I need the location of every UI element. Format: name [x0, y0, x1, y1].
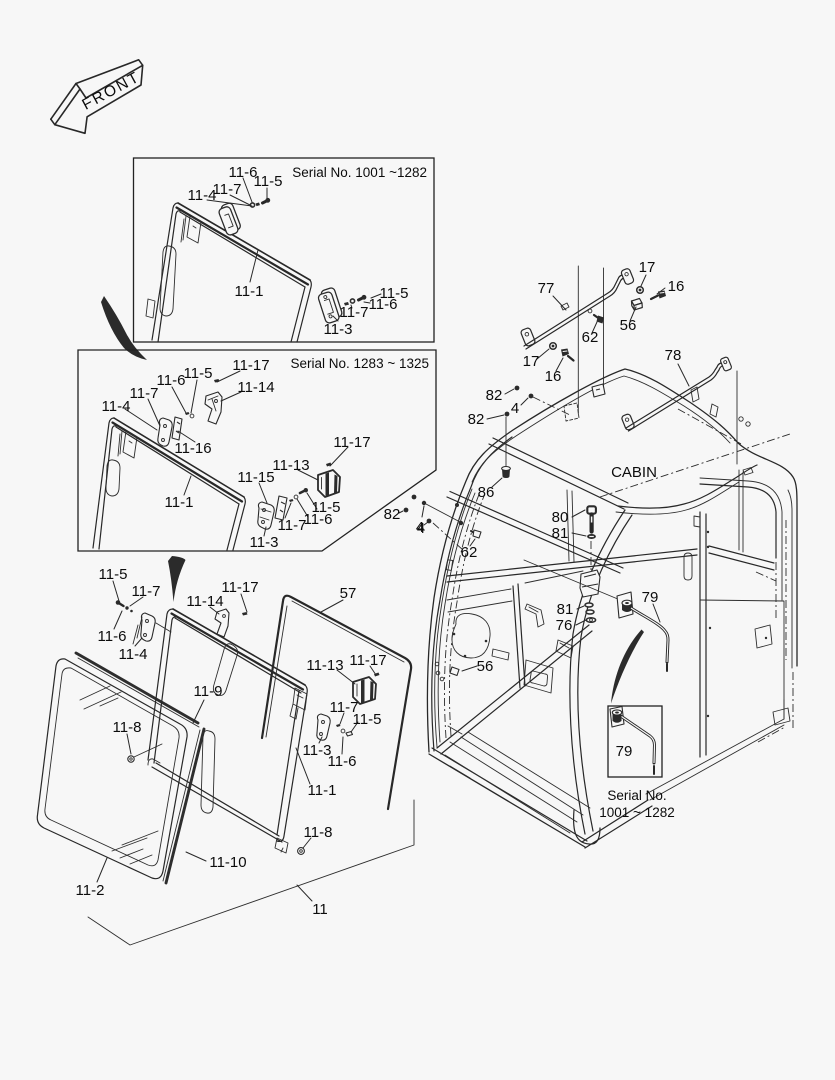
svg-text:11-8: 11-8 — [113, 719, 142, 736]
svg-text:57: 57 — [340, 585, 357, 602]
svg-text:11-17: 11-17 — [221, 579, 258, 596]
svg-text:11-1: 11-1 — [165, 494, 194, 511]
svg-text:11: 11 — [312, 901, 328, 918]
svg-text:16: 16 — [668, 278, 685, 295]
svg-text:4: 4 — [417, 520, 425, 537]
svg-text:56: 56 — [477, 658, 494, 675]
svg-text:11-7: 11-7 — [130, 385, 159, 402]
svg-text:78: 78 — [665, 347, 682, 364]
svg-text:11-6: 11-6 — [369, 296, 398, 313]
svg-text:11-7: 11-7 — [278, 517, 307, 534]
svg-text:4: 4 — [511, 400, 519, 417]
svg-text:62: 62 — [582, 329, 599, 346]
svg-text:62: 62 — [461, 544, 478, 561]
svg-text:77: 77 — [538, 280, 555, 297]
svg-text:82: 82 — [486, 387, 503, 404]
svg-text:11-3: 11-3 — [324, 321, 353, 338]
svg-text:11-5: 11-5 — [254, 173, 283, 190]
svg-text:80: 80 — [552, 509, 569, 526]
svg-text:11-3: 11-3 — [250, 534, 279, 551]
svg-text:Serial No. 1001 ~1282: Serial No. 1001 ~1282 — [292, 165, 427, 180]
svg-text:82: 82 — [468, 411, 485, 428]
svg-text:11-5: 11-5 — [353, 711, 382, 728]
svg-text:11-13: 11-13 — [306, 657, 343, 674]
svg-text:11-17: 11-17 — [333, 434, 370, 451]
svg-text:11-16: 11-16 — [174, 440, 211, 457]
svg-text:11-6: 11-6 — [328, 753, 357, 770]
svg-text:11-6: 11-6 — [304, 511, 333, 528]
svg-text:11-5: 11-5 — [184, 365, 213, 382]
svg-text:11-13: 11-13 — [272, 457, 309, 474]
svg-text:11-4: 11-4 — [119, 646, 148, 663]
svg-text:11-1: 11-1 — [235, 283, 264, 300]
svg-text:11-17: 11-17 — [232, 357, 269, 374]
svg-text:Serial No. 1283 ~ 1325: Serial No. 1283 ~ 1325 — [291, 356, 429, 371]
svg-text:82: 82 — [384, 506, 401, 523]
svg-text:11-14: 11-14 — [186, 593, 223, 610]
svg-text:76: 76 — [556, 617, 573, 634]
svg-text:11-10: 11-10 — [209, 854, 246, 871]
svg-text:11-6: 11-6 — [157, 372, 186, 389]
svg-text:11-6: 11-6 — [98, 628, 127, 645]
svg-text:11-7: 11-7 — [213, 181, 242, 198]
svg-text:86: 86 — [478, 484, 495, 501]
svg-text:1001 ~ 1282: 1001 ~ 1282 — [599, 805, 674, 820]
svg-text:16: 16 — [545, 368, 562, 385]
svg-text:11-4: 11-4 — [102, 398, 131, 415]
svg-text:11-4: 11-4 — [188, 187, 217, 204]
svg-text:11-2: 11-2 — [76, 882, 105, 899]
svg-text:17: 17 — [639, 259, 656, 276]
svg-text:81: 81 — [552, 525, 569, 542]
svg-text:11-1: 11-1 — [308, 782, 337, 799]
svg-text:CABIN: CABIN — [611, 464, 657, 481]
svg-text:79: 79 — [642, 589, 659, 606]
svg-text:79: 79 — [616, 743, 633, 760]
svg-text:11-15: 11-15 — [237, 469, 274, 486]
svg-text:Serial No.: Serial No. — [607, 788, 666, 803]
svg-text:56: 56 — [620, 317, 637, 334]
svg-text:11-7: 11-7 — [340, 304, 369, 321]
svg-text:11-17: 11-17 — [349, 652, 386, 669]
svg-text:17: 17 — [523, 353, 540, 370]
svg-text:11-7: 11-7 — [132, 583, 161, 600]
svg-text:11-8: 11-8 — [304, 824, 333, 841]
svg-text:81: 81 — [557, 601, 574, 618]
svg-text:11-9: 11-9 — [194, 683, 223, 700]
svg-text:11-5: 11-5 — [99, 566, 128, 583]
svg-text:11-14: 11-14 — [237, 379, 274, 396]
